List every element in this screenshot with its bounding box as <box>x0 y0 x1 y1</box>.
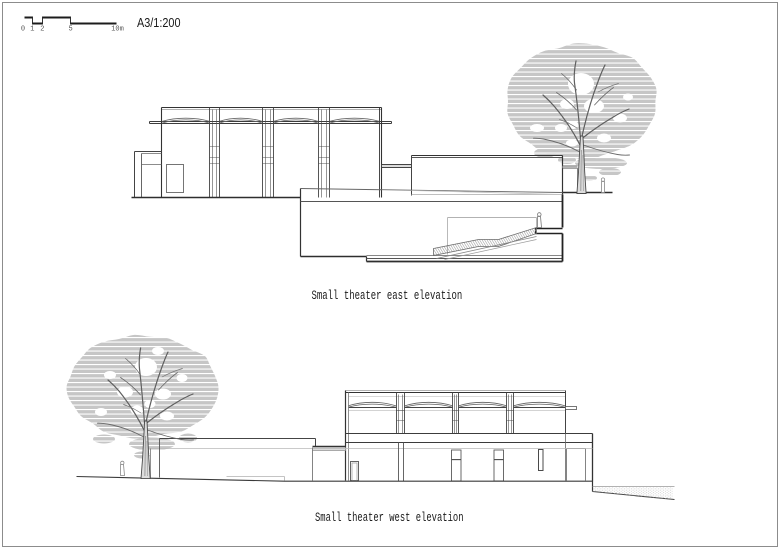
svg-text:Small theater east elevation: Small theater east elevation <box>312 288 463 303</box>
svg-text:Small theater west elevation: Small theater west elevation <box>315 510 464 525</box>
svg-text:1: 1 <box>30 26 34 34</box>
svg-text:10m: 10m <box>111 26 124 34</box>
svg-text:0: 0 <box>21 26 25 34</box>
svg-text:2: 2 <box>40 26 44 34</box>
svg-text:A3/1:200: A3/1:200 <box>137 15 181 30</box>
svg-text:5: 5 <box>68 26 72 34</box>
